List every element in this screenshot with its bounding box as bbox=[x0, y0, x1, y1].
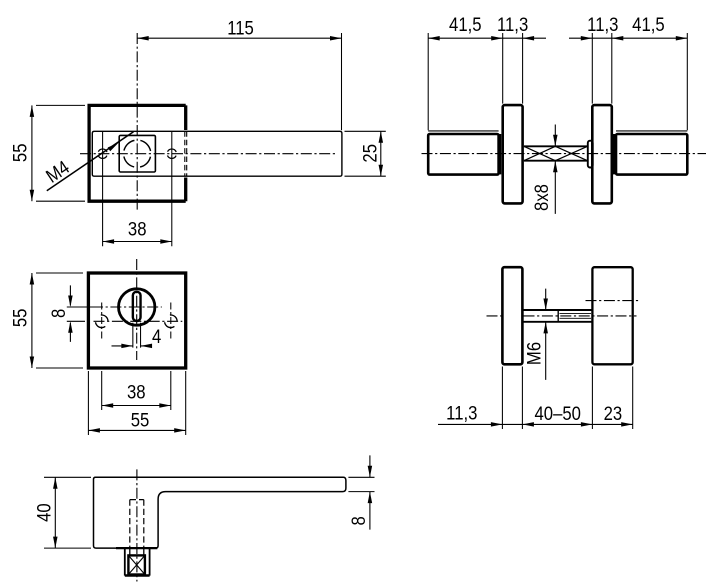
svg-text:55: 55 bbox=[10, 144, 31, 163]
svg-text:38: 38 bbox=[127, 381, 146, 402]
svg-text:M6: M6 bbox=[523, 342, 544, 365]
svg-text:115: 115 bbox=[227, 17, 254, 38]
svg-text:38: 38 bbox=[128, 218, 147, 239]
svg-text:41,5: 41,5 bbox=[632, 14, 665, 35]
svg-text:41,5: 41,5 bbox=[449, 14, 482, 35]
svg-text:11,3: 11,3 bbox=[587, 14, 618, 35]
svg-text:25: 25 bbox=[359, 144, 380, 163]
svg-text:8: 8 bbox=[348, 516, 369, 525]
svg-text:40: 40 bbox=[33, 503, 54, 522]
svg-text:23: 23 bbox=[604, 403, 623, 424]
svg-text:55: 55 bbox=[131, 410, 150, 431]
svg-text:8: 8 bbox=[48, 309, 69, 318]
svg-text:4: 4 bbox=[152, 326, 161, 347]
svg-text:11,3: 11,3 bbox=[446, 402, 477, 423]
svg-text:11,3: 11,3 bbox=[497, 14, 528, 35]
svg-text:40–50: 40–50 bbox=[534, 403, 580, 424]
svg-text:55: 55 bbox=[9, 309, 30, 328]
svg-text:8x8: 8x8 bbox=[531, 184, 552, 211]
